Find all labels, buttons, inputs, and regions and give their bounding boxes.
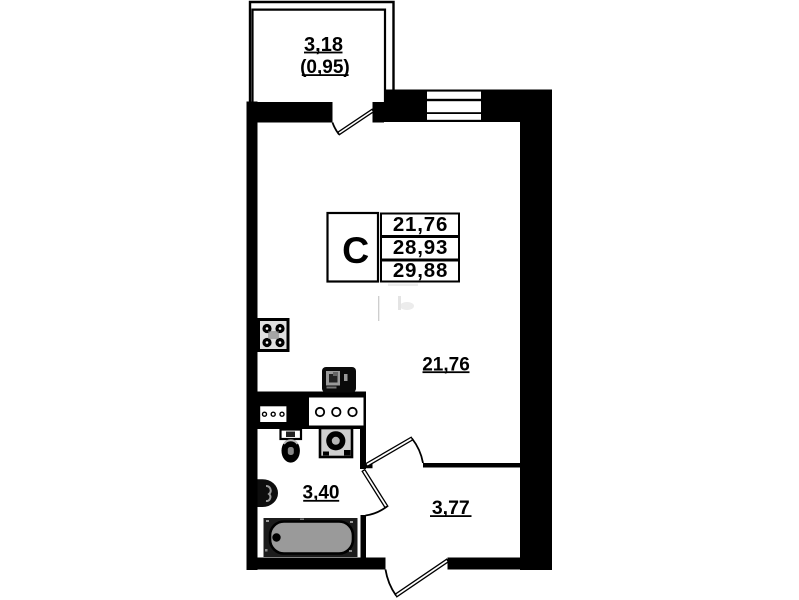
svg-text:21,76: 21,76 [393,213,448,236]
svg-text:С: С [342,229,369,271]
svg-text:28,93: 28,93 [393,236,448,259]
svg-text:29,88: 29,88 [393,259,448,282]
